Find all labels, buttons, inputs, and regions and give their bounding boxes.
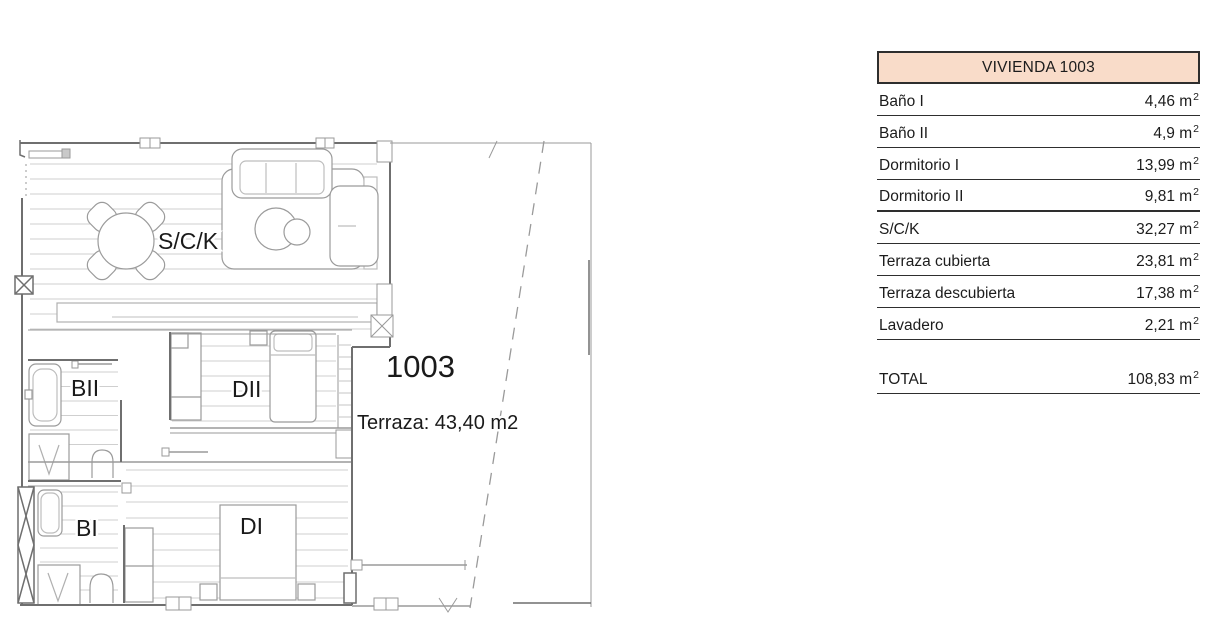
entry-door: [26, 149, 70, 196]
area-value-number: 13,99: [1136, 157, 1175, 174]
area-row-label: Lavadero: [879, 317, 944, 335]
column-x-marker: [15, 276, 33, 294]
area-row-label: Baño II: [879, 125, 928, 143]
room-label-bii: BII: [71, 375, 99, 401]
wall-hatch: [339, 345, 351, 417]
area-unit-superscript: 2: [1193, 155, 1199, 167]
terrace-boundary-dashed: [470, 141, 544, 608]
area-row: Baño I 4,46 m2: [877, 84, 1200, 116]
area-unit: m: [1175, 188, 1192, 205]
area-unit-superscript: 2: [1193, 315, 1199, 327]
area-value-number: 9,81: [1145, 188, 1175, 205]
area-row-label: Terraza cubierta: [879, 253, 990, 271]
area-row: Baño II 4,9 m2: [877, 116, 1200, 148]
area-unit-superscript: 2: [1193, 123, 1199, 135]
area-value-number: 23,81: [1136, 253, 1175, 270]
area-row-label: Baño I: [879, 93, 924, 111]
area-unit-superscript: 2: [1193, 186, 1199, 198]
area-unit: m: [1175, 157, 1192, 174]
area-value-number: 32,27: [1136, 221, 1175, 238]
area-value-number: 2,21: [1145, 317, 1175, 334]
area-value-number: 108,83: [1128, 371, 1175, 388]
area-row-value: 108,83 m2: [1128, 371, 1199, 389]
room-label-dii: DII: [232, 376, 261, 402]
area-row-value: 4,9 m2: [1153, 125, 1199, 143]
kitchen-counter: [57, 303, 377, 322]
area-row-value: 4,46 m2: [1145, 93, 1199, 111]
side-table: [284, 219, 310, 245]
dining-table: [98, 213, 154, 269]
table-spacer: [877, 340, 1200, 362]
bedroom1-furniture: [125, 505, 315, 602]
area-unit-superscript: 2: [1193, 283, 1199, 295]
column-x-marker: [371, 315, 393, 337]
area-unit-superscript: 2: [1193, 91, 1199, 103]
area-value-number: 4,9: [1153, 125, 1175, 142]
area-value-number: 4,46: [1145, 93, 1175, 110]
area-unit-superscript: 2: [1193, 251, 1199, 263]
dining-set: [84, 199, 169, 284]
nightstand: [298, 584, 315, 600]
shaft-hatched: [18, 487, 34, 603]
terrace-note: Terraza: 43,40 m2: [357, 412, 518, 434]
toilet: [90, 574, 113, 603]
sofa-group: [222, 149, 378, 269]
area-unit: m: [1175, 125, 1192, 142]
area-row-label: Dormitorio I: [879, 157, 959, 175]
nightstand: [250, 331, 267, 345]
toilet: [92, 450, 113, 478]
area-row-value: 13,99 m2: [1136, 157, 1199, 175]
floor-plan-sheet: S/C/K BII DII BI DI 1003 Terraza: 43,40 …: [0, 0, 1217, 634]
area-row-value: 2,21 m2: [1145, 317, 1199, 335]
areas-table: VIVIENDA 1003 Baño I 4,46 m2 Baño II 4,9…: [877, 51, 1200, 394]
area-unit-superscript: 2: [1193, 219, 1199, 231]
door-handle: [62, 149, 70, 158]
area-unit: m: [1175, 221, 1192, 238]
area-row-value: 23,81 m2: [1136, 253, 1199, 271]
area-unit: m: [1175, 371, 1192, 388]
area-row-value: 17,38 m2: [1136, 285, 1199, 303]
room-label-sck: S/C/K: [158, 228, 219, 254]
area-row: Dormitorio II 9,81 m2: [877, 180, 1200, 212]
area-unit-superscript: 2: [1193, 369, 1199, 381]
wardrobe: [125, 528, 153, 602]
room-label-di: DI: [240, 513, 263, 539]
area-row: Terraza cubierta 23,81 m2: [877, 244, 1200, 276]
floor-plan: S/C/K BII DII BI DI 1003 Terraza: 43,40 …: [0, 0, 660, 634]
area-row: Terraza descubierta 17,38 m2: [877, 276, 1200, 308]
area-row-label: S/C/K: [879, 221, 919, 239]
area-value-number: 17,38: [1136, 285, 1175, 302]
area-unit: m: [1175, 253, 1192, 270]
area-row-label: Dormitorio II: [879, 188, 963, 206]
area-row: Lavadero 2,21 m2: [877, 308, 1200, 340]
room-label-bi: BI: [76, 515, 98, 541]
area-unit: m: [1175, 285, 1192, 302]
areas-table-body: Baño I 4,46 m2 Baño II 4,9 m2 Dormitorio…: [877, 84, 1200, 394]
total-row: TOTAL 108,83 m2: [877, 362, 1200, 394]
area-row-label: Terraza descubierta: [879, 285, 1015, 303]
table-title: VIVIENDA 1003: [877, 51, 1200, 84]
area-unit: m: [1175, 93, 1192, 110]
nightstand: [200, 584, 217, 600]
area-row-value: 32,27 m2: [1136, 221, 1199, 239]
area-unit: m: [1175, 317, 1192, 334]
unit-number: 1003: [386, 349, 455, 384]
area-row: S/C/K 32,27 m2: [877, 212, 1200, 244]
area-row: Dormitorio I 13,99 m2: [877, 148, 1200, 180]
area-row-label: TOTAL: [879, 371, 928, 389]
area-row-value: 9,81 m2: [1145, 188, 1199, 206]
